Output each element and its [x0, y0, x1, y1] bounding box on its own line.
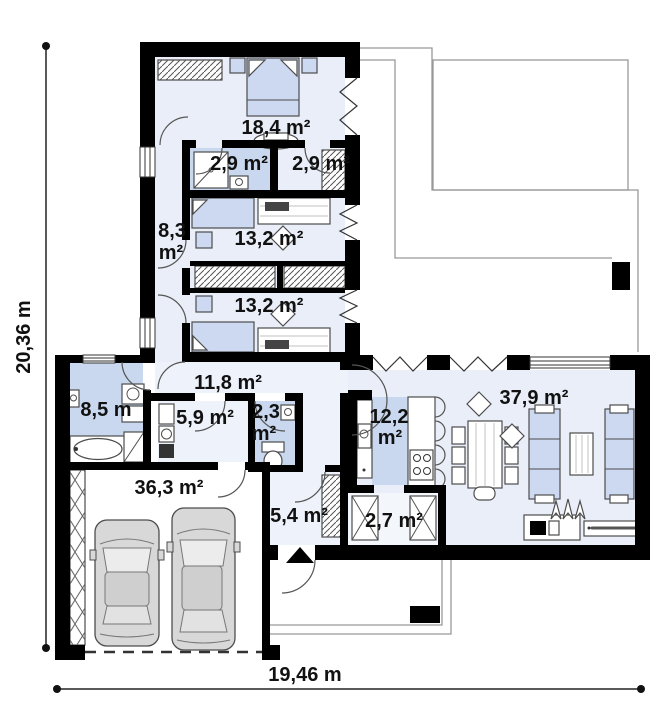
sofa — [605, 409, 634, 499]
room-label-utility: 5,9 m² — [176, 407, 234, 429]
room-label-living-room: 37,9 m² — [500, 387, 569, 409]
porch-pillar — [410, 606, 440, 623]
furnace — [159, 444, 174, 458]
car-2 — [167, 508, 240, 650]
room-label-master-bedroom: 18,4 m² — [242, 117, 311, 139]
dimension-height: 20,36 m — [13, 42, 50, 652]
room-label-hall: 11,8 m² — [194, 372, 262, 394]
room-label-wc-line2: m² — [252, 423, 277, 445]
room-label-bedroom-2: 13,2 m² — [235, 228, 304, 250]
dimension-width: 19,46 m — [53, 664, 645, 693]
height-dimension-label: 20,36 m — [13, 300, 35, 373]
room-label-kitchen-line2: m² — [378, 427, 403, 449]
dining-chair — [474, 487, 495, 500]
window — [83, 355, 115, 363]
panorama-window — [373, 357, 427, 371]
window — [530, 357, 610, 368]
floor-plan-drawing: 18,4 m² 2,9 m² 2,9 m² 8,3 m² 13,2 m² 13,… — [0, 0, 655, 722]
washbasin — [281, 405, 295, 420]
dining-chair — [505, 447, 518, 464]
dining-chair — [452, 427, 465, 444]
room-label-kitchen-line1: 12,2 — [370, 406, 409, 428]
nightstand — [196, 296, 212, 312]
room-label-corridor-line1: 8,3 — [158, 220, 186, 242]
nightstand — [230, 58, 245, 73]
room-label-garage: 36,3 m² — [135, 477, 204, 499]
nightstand — [302, 58, 317, 73]
window — [140, 318, 155, 348]
utility-equipment — [159, 404, 174, 458]
room-label-bedroom-3: 13,2 m² — [235, 295, 304, 317]
washbasin — [230, 176, 248, 189]
entrance-arrow-icon — [286, 547, 314, 563]
laptop — [265, 202, 289, 211]
floor-plan: 18,4 m² 2,9 m² 2,9 m² 8,3 m² 13,2 m² 13,… — [0, 0, 655, 722]
panorama-window — [450, 357, 507, 371]
terrace-outline — [360, 48, 638, 352]
sofa — [529, 409, 560, 499]
room-label-wardrobe: 2,9 m² — [292, 153, 350, 175]
room-label-shower-room: 2,9 m² — [210, 153, 268, 175]
room-label-vestibule: 5,4 m² — [270, 505, 328, 527]
car-1 — [90, 520, 164, 646]
terrace-pillar — [612, 262, 630, 290]
built-in-wardrobes — [195, 266, 345, 288]
boiler — [159, 404, 174, 424]
width-dimension-label: 19,46 m — [268, 664, 341, 686]
room-label-pantry: 2,7 m² — [365, 510, 423, 532]
window — [140, 147, 155, 177]
dining-chair — [452, 447, 465, 464]
porch-outline — [270, 560, 451, 634]
dining-chair — [505, 467, 518, 484]
laptop — [265, 340, 289, 349]
stove — [410, 450, 433, 480]
door-entrance-swing — [282, 560, 315, 593]
room-label-corridor-line2: m² — [159, 242, 184, 264]
dining-chair — [452, 467, 465, 484]
nightstand — [196, 232, 212, 248]
room-label-wc-line1: 2,3 — [252, 401, 280, 423]
room-label-bathroom: 8,5 m — [80, 399, 131, 421]
garage-storage-strip — [70, 470, 85, 645]
